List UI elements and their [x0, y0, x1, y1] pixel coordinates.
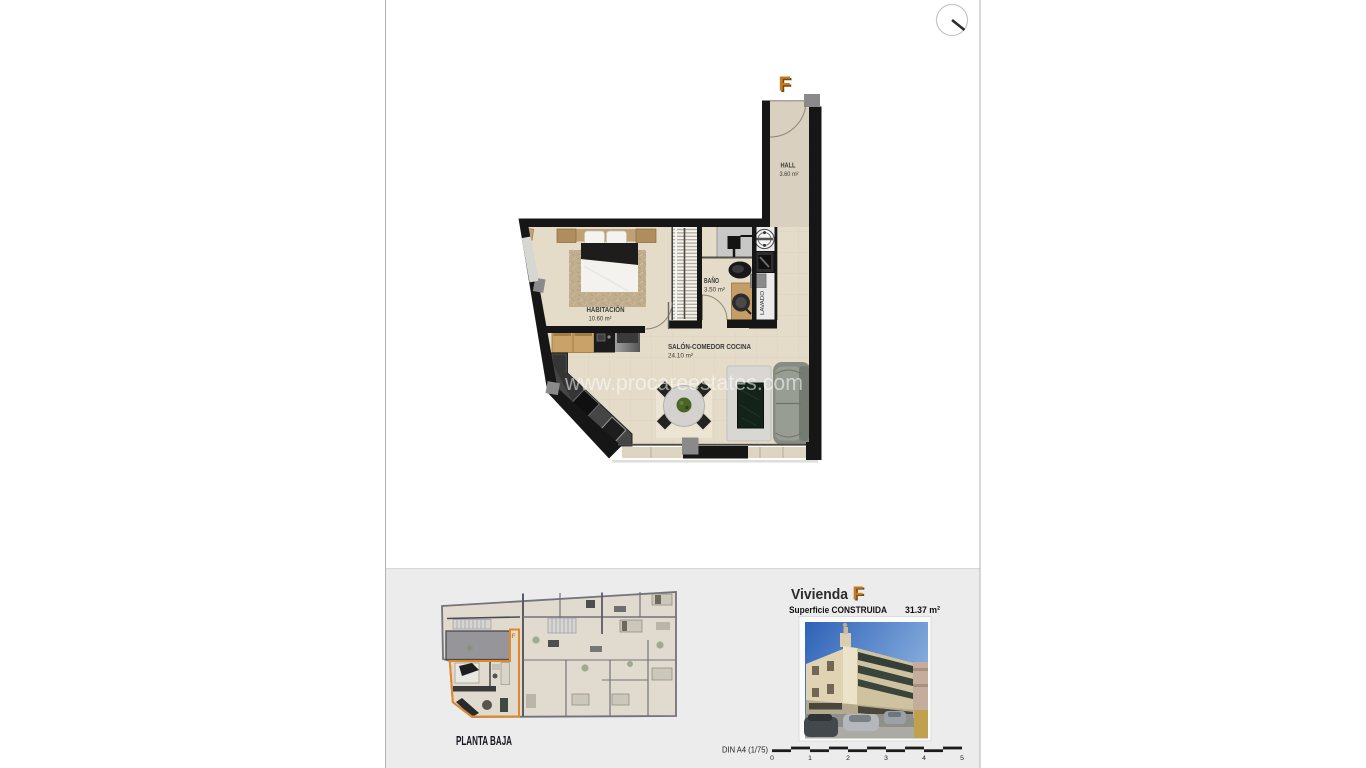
svg-text:BAÑO: BAÑO	[704, 276, 719, 285]
svg-text:HABITACIÓN: HABITACIÓN	[587, 305, 625, 314]
svg-text:HALL: HALL	[781, 163, 797, 170]
svg-text:F: F	[779, 74, 791, 96]
svg-text:DIN A4 (1/75): DIN A4 (1/75)	[722, 746, 768, 755]
svg-text:SALÓN-COMEDOR COCINA: SALÓN-COMEDOR COCINA	[668, 342, 751, 351]
svg-text:31.37 m²: 31.37 m²	[905, 605, 940, 616]
svg-text:www.procareestates.com: www.procareestates.com	[564, 370, 803, 395]
svg-text:4: 4	[922, 755, 926, 762]
svg-text:3: 3	[884, 755, 888, 762]
svg-text:F: F	[512, 633, 516, 640]
svg-text:F: F	[853, 584, 864, 604]
svg-text:3.50 m²: 3.50 m²	[704, 287, 725, 294]
svg-text:10.60 m²: 10.60 m²	[589, 316, 612, 323]
svg-text:Superficie CONSTRUIDA: Superficie CONSTRUIDA	[789, 605, 887, 616]
svg-text:LAVADO: LAVADO	[760, 290, 766, 315]
svg-text:2: 2	[846, 755, 850, 762]
svg-text:Vivienda: Vivienda	[791, 586, 849, 603]
svg-text:0: 0	[770, 755, 774, 762]
svg-text:1: 1	[808, 755, 812, 762]
svg-text:3.60 m²: 3.60 m²	[780, 171, 799, 178]
svg-text:5: 5	[960, 755, 964, 762]
svg-text:24.10 m²: 24.10 m²	[668, 353, 693, 360]
svg-text:PLANTA BAJA: PLANTA BAJA	[456, 733, 512, 748]
